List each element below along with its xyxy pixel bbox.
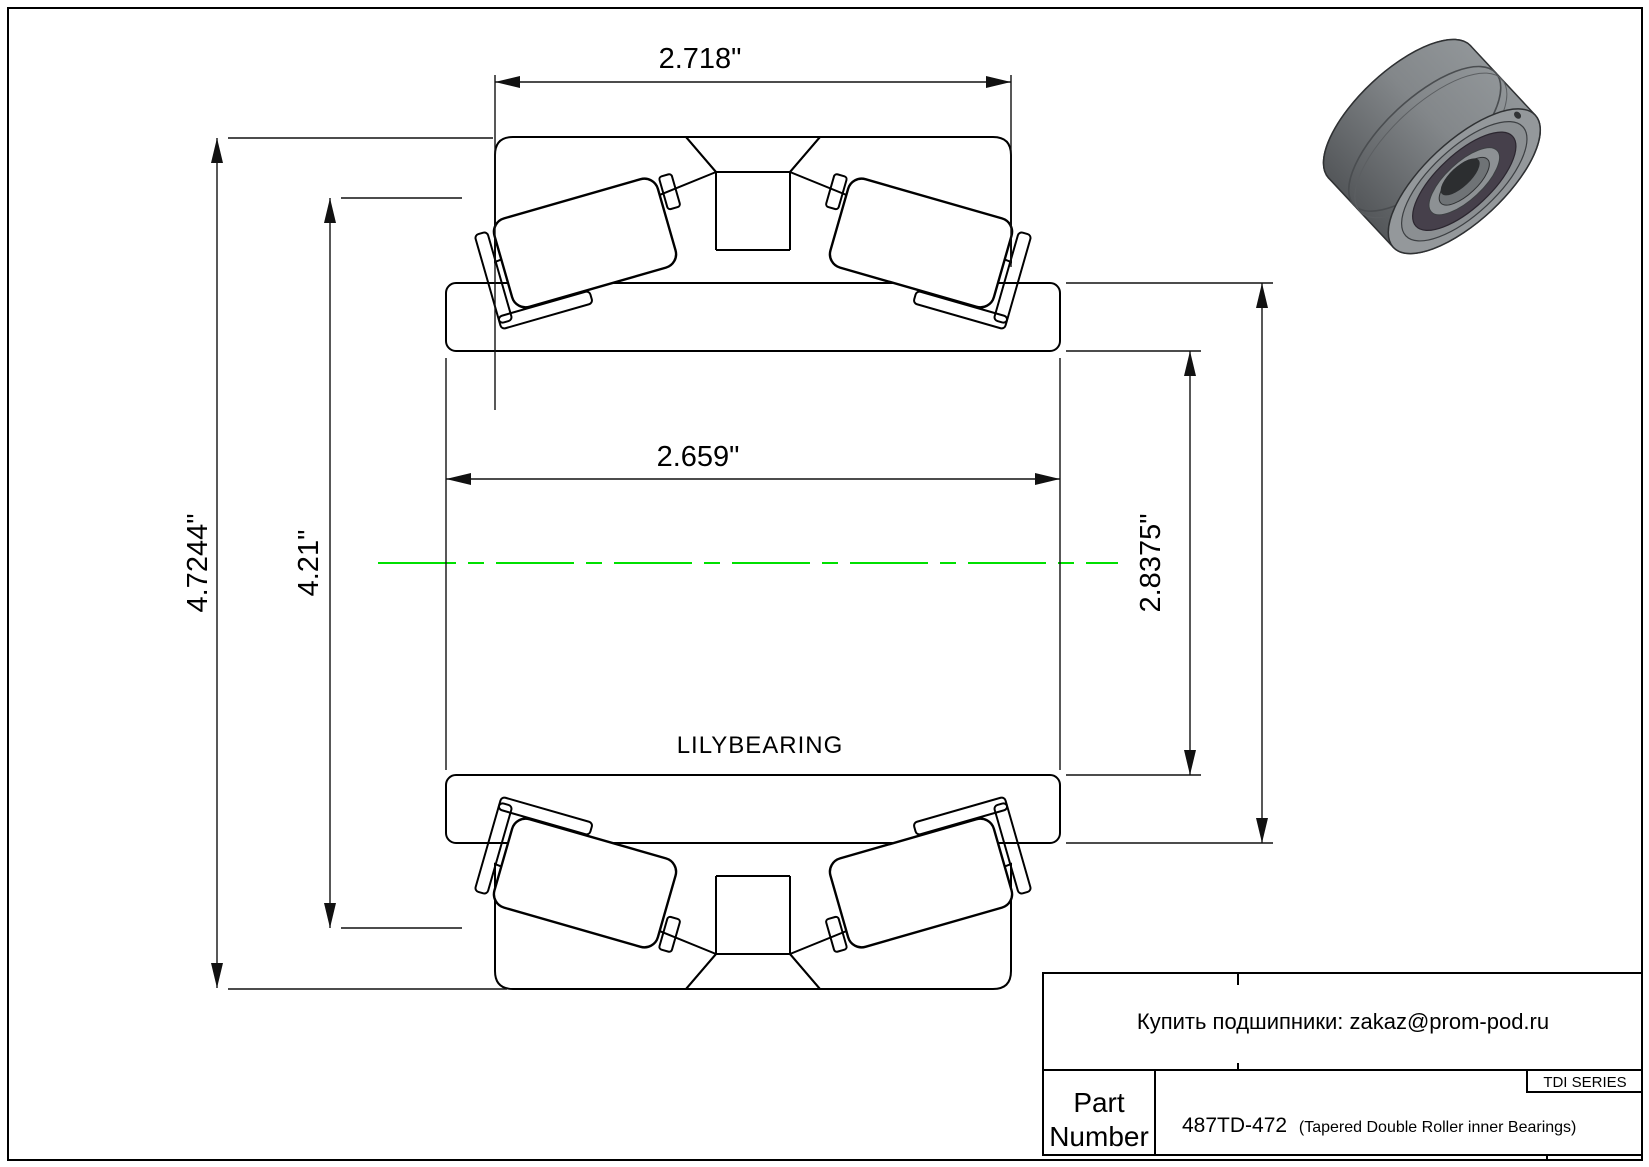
drawing-page: LILYBEARING 2.718" 2.659" 4.7244" 4.21" … <box>0 0 1649 1167</box>
part-number-line: 487TD-472 (Tapered Double Roller inner B… <box>1182 1114 1576 1137</box>
bearing-section-top-half <box>446 137 1060 351</box>
brand-watermark: LILYBEARING <box>677 732 844 759</box>
part-number: 487TD-472 <box>1182 1114 1287 1137</box>
dim-top-width: 2.718" <box>659 43 742 75</box>
dim-right-inner: 2.8375" <box>1135 514 1167 613</box>
part-label-line2: Number <box>1049 1121 1149 1152</box>
bearing-3d-image <box>1301 16 1562 276</box>
bearing-section-bottom-half <box>446 775 1060 989</box>
part-label-line1: Part <box>1073 1087 1125 1118</box>
contact-line: Купить подшипники: zakaz@prom-pod.ru <box>1137 1009 1549 1034</box>
series-label: TDI SERIES <box>1543 1074 1626 1091</box>
extension-lines <box>228 75 1273 989</box>
dimension-lines <box>211 76 1268 988</box>
technical-drawing: LILYBEARING 2.718" 2.659" 4.7244" 4.21" … <box>0 0 1649 1167</box>
dim-inner-width: 2.659" <box>657 441 740 473</box>
dim-left-mid: 4.21" <box>293 530 325 597</box>
dim-left-outer: 4.7244" <box>182 514 214 613</box>
part-description: (Tapered Double Roller inner Bearings) <box>1299 1119 1576 1136</box>
title-block: Купить подшипники: zakaz@prom-pod.ru TDI… <box>1043 973 1642 1160</box>
